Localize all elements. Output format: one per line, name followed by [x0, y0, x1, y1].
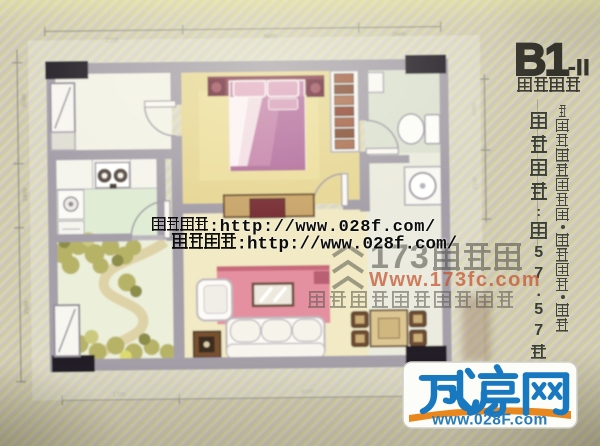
svg-text:3150: 3150 [22, 93, 28, 107]
svg-text:2550: 2550 [24, 300, 30, 314]
svg-text:www.028F.com: www.028F.com [431, 412, 548, 429]
svg-text:1800: 1800 [23, 187, 29, 201]
